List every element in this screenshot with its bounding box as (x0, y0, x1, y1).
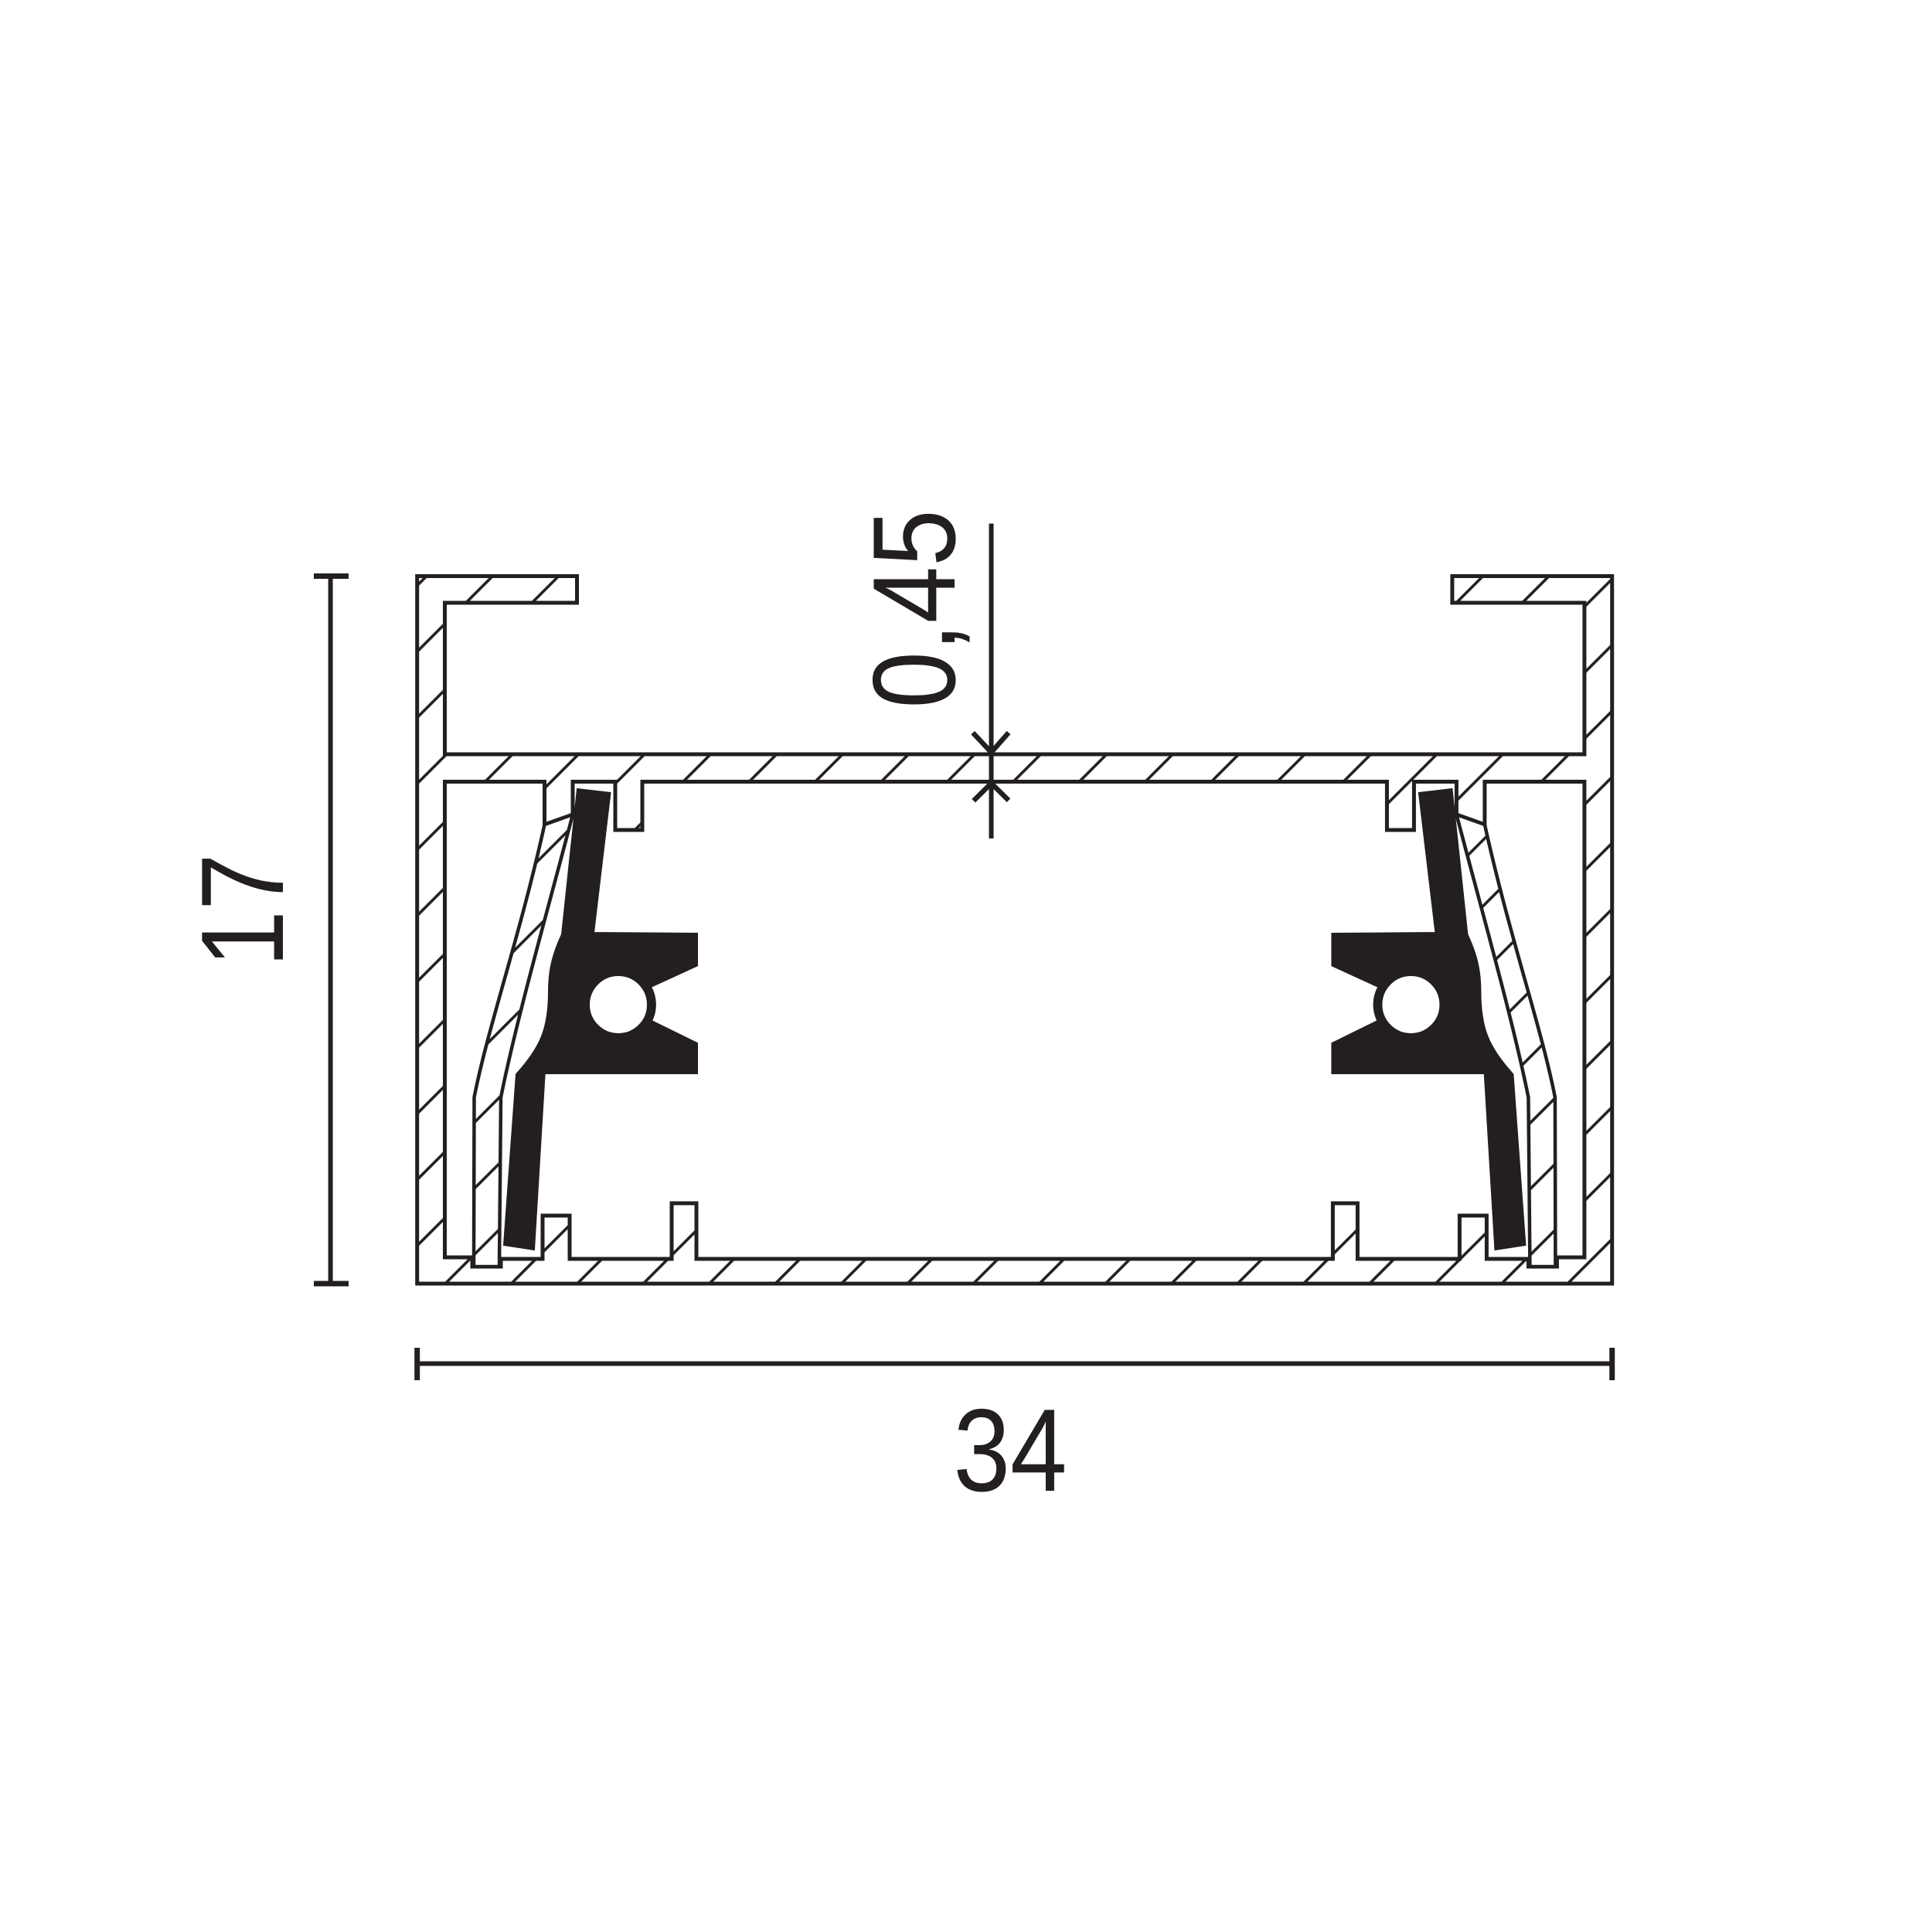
svg-text:0,45: 0,45 (849, 509, 980, 708)
svg-text:34: 34 (953, 1385, 1067, 1516)
svg-text:17: 17 (177, 853, 308, 967)
